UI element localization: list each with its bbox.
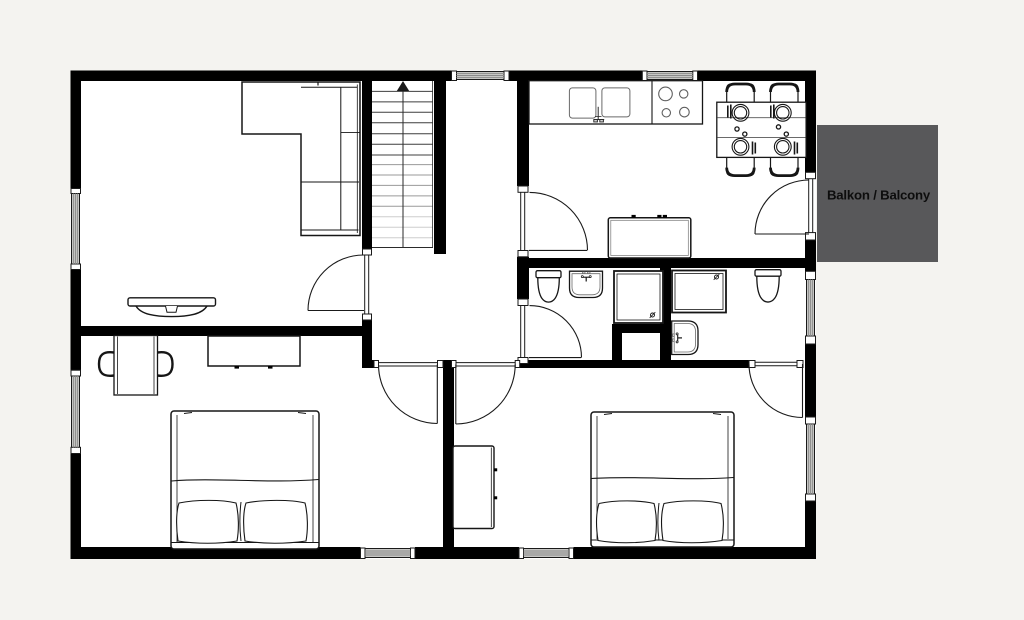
svg-text:Balkon / Balcony: Balkon / Balcony <box>827 188 931 203</box>
